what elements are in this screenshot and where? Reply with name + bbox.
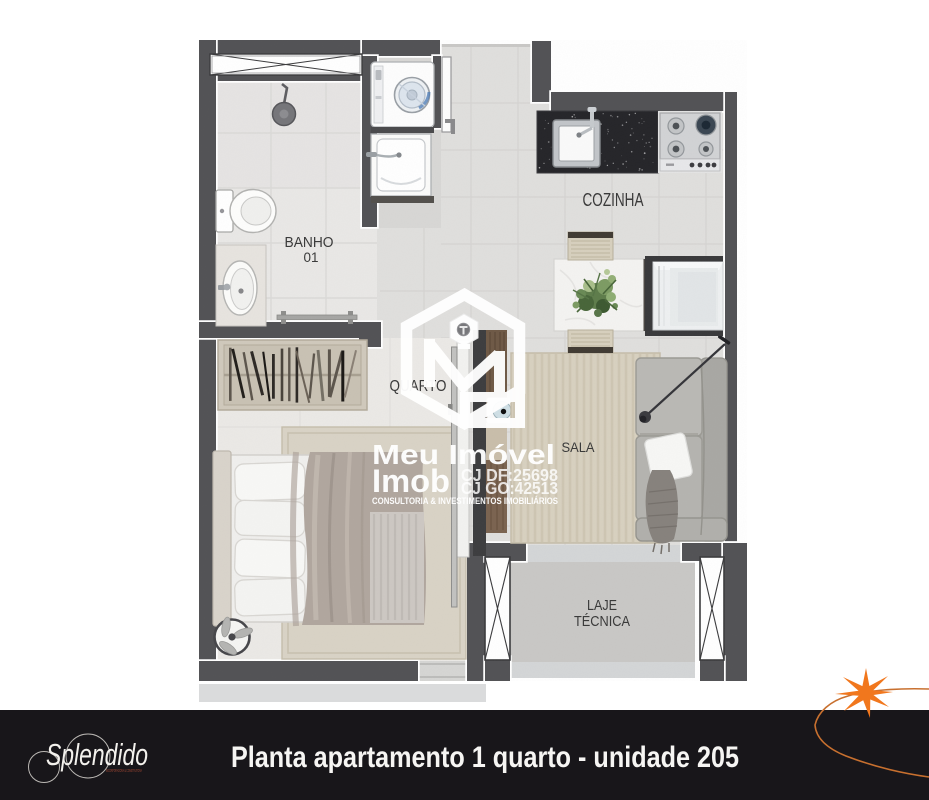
- svg-text:Imob: Imob: [372, 463, 450, 499]
- svg-text:CONSULTORIA & INVESTIMENTOS IM: CONSULTORIA & INVESTIMENTOS IMOBILIÁRIOS: [372, 496, 558, 507]
- svg-text:CJ GO:42513: CJ GO:42513: [461, 478, 558, 498]
- svg-text:Planta apartamento 1 quarto -: Planta apartamento 1 quarto - unidade 20…: [231, 741, 739, 774]
- svg-text:INCORPORADORA & CONSTRUTORA: INCORPORADORA & CONSTRUTORA: [106, 768, 142, 773]
- svg-text:Splendido: Splendido: [46, 737, 148, 772]
